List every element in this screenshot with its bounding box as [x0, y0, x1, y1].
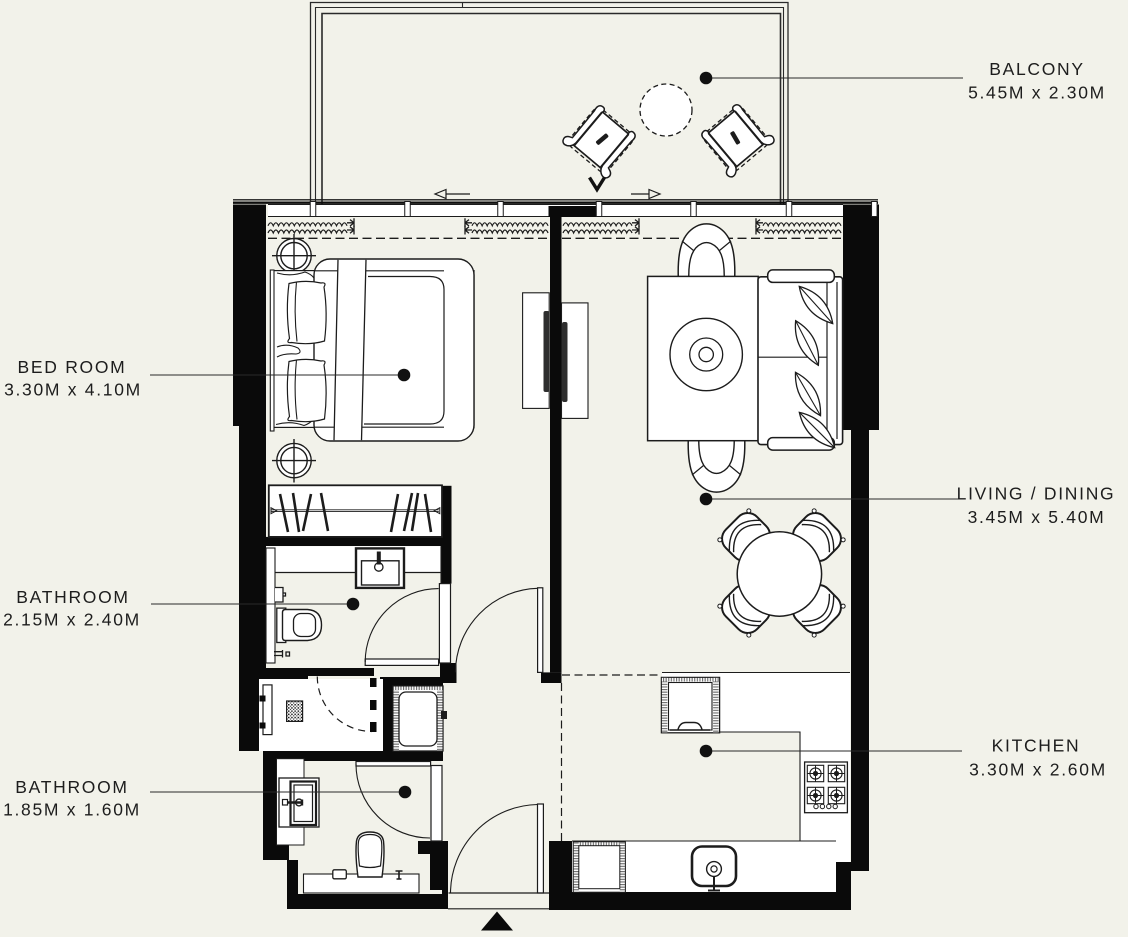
svg-text:KITCHEN: KITCHEN — [992, 736, 1081, 756]
svg-text:2.15M x 2.40M: 2.15M x 2.40M — [3, 610, 141, 630]
svg-text:LIVING / DINING: LIVING / DINING — [957, 483, 1116, 503]
svg-text:1.85M x 1.60M: 1.85M x 1.60M — [3, 800, 141, 820]
svg-text:3.45M x 5.40M: 3.45M x 5.40M — [968, 507, 1106, 527]
svg-text:BATHROOM: BATHROOM — [16, 587, 129, 607]
svg-text:BATHROOM: BATHROOM — [15, 777, 128, 797]
svg-text:3.30M x 2.60M: 3.30M x 2.60M — [969, 760, 1107, 780]
svg-text:3.30M x 4.10M: 3.30M x 4.10M — [4, 380, 142, 400]
svg-text:BALCONY: BALCONY — [989, 59, 1085, 79]
svg-text:BED ROOM: BED ROOM — [18, 357, 127, 377]
svg-text:5.45M x 2.30M: 5.45M x 2.30M — [968, 83, 1106, 103]
